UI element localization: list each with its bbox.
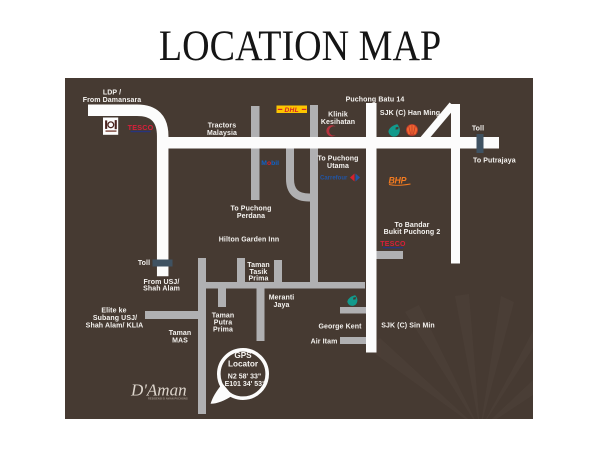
svg-text:Bukit Puchong 2: Bukit Puchong 2 xyxy=(384,229,441,236)
svg-text:Taman: Taman xyxy=(169,330,192,337)
svg-text:Subang USJ/: Subang USJ/ xyxy=(93,315,137,322)
svg-text:From Damansara: From Damansara xyxy=(83,97,142,104)
svg-text:BHP: BHP xyxy=(389,176,407,186)
svg-text:E101 34' 53": E101 34' 53" xyxy=(225,381,266,388)
svg-text:Meranti: Meranti xyxy=(269,295,295,302)
svg-text:Puchong Batu 14: Puchong Batu 14 xyxy=(346,97,405,104)
svg-text:Jaya: Jaya xyxy=(274,302,290,309)
svg-text:George Kent: George Kent xyxy=(318,324,362,331)
svg-text:Perdana: Perdana xyxy=(237,213,265,220)
svg-text:Toll: Toll xyxy=(472,126,484,133)
svg-text:LDP /: LDP / xyxy=(103,90,121,97)
svg-text:Taman: Taman xyxy=(212,313,235,320)
svg-text:Elite ke: Elite ke xyxy=(101,308,126,315)
svg-text:Mobil: Mobil xyxy=(261,160,279,167)
svg-text:Prima: Prima xyxy=(213,327,233,334)
svg-text:Carrefour: Carrefour xyxy=(320,176,348,182)
svg-text:Locator: Locator xyxy=(228,360,259,369)
svg-text:Shah Alam: Shah Alam xyxy=(143,286,180,293)
svg-text:Hilton Garden Inn: Hilton Garden Inn xyxy=(219,237,279,244)
svg-text:Kesihatan: Kesihatan xyxy=(321,119,355,126)
svg-text:Air Itam: Air Itam xyxy=(311,339,338,346)
svg-text:Utama: Utama xyxy=(327,163,349,170)
svg-text:To Puchong: To Puchong xyxy=(231,206,272,213)
svg-text:TESCO: TESCO xyxy=(128,123,154,132)
svg-text:SJK (C) Han Ming: SJK (C) Han Ming xyxy=(380,110,440,117)
svg-text:Shah Alam/ KLIA: Shah Alam/ KLIA xyxy=(86,323,144,330)
svg-text:To Putrajaya: To Putrajaya xyxy=(473,158,516,165)
svg-text:Prima: Prima xyxy=(249,275,269,282)
svg-text:Malaysia: Malaysia xyxy=(207,130,237,137)
svg-text:Toll: Toll xyxy=(138,260,150,267)
svg-text:Putra: Putra xyxy=(214,320,232,327)
svg-text:To Puchong: To Puchong xyxy=(318,156,359,163)
svg-text:N2 58' 33": N2 58' 33" xyxy=(228,374,261,381)
svg-text:SJK (C) Sin Min: SJK (C) Sin Min xyxy=(381,322,435,329)
svg-text:MAS: MAS xyxy=(172,338,188,345)
svg-text:Tractors: Tractors xyxy=(208,123,236,130)
svg-text:Klinik: Klinik xyxy=(328,112,348,119)
svg-text:TESCO: TESCO xyxy=(380,241,406,248)
svg-text:RESIDENSI D AMAN PUCHONG: RESIDENSI D AMAN PUCHONG xyxy=(148,398,188,401)
svg-text:DHL: DHL xyxy=(284,107,298,114)
